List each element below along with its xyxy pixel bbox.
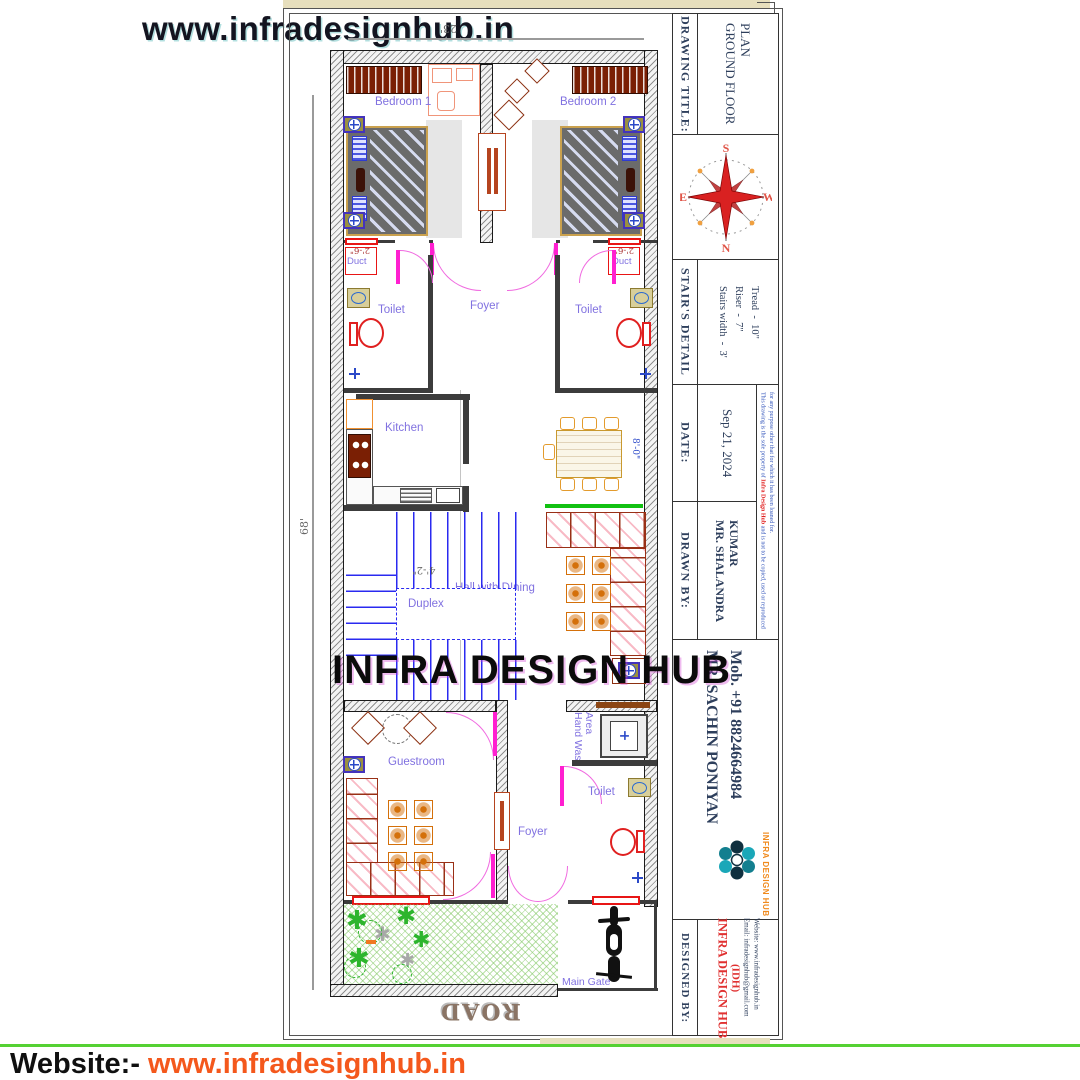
wardrobe-bedroom2 (572, 66, 648, 94)
window-bedroom2-lower (623, 212, 645, 229)
dim-line-left (312, 95, 314, 990)
stair-row-tread: Tread - 10" (746, 286, 762, 358)
road-label: ROAD (400, 998, 560, 1024)
tb-drawing-title-label: DRAWING TITLE: (673, 14, 698, 134)
guest-table-3 (388, 826, 407, 845)
handwash-shelf (596, 702, 650, 708)
tb-drawing-title: DRAWING TITLE: GROUND FLOOR PLAN (673, 14, 778, 134)
basin-toiletR (630, 288, 653, 308)
tb-logo-text: INFRA DESIGN HUB (761, 832, 770, 917)
label-foyer-upper: Foyer (470, 300, 499, 312)
label-duct-left: Duct (347, 256, 367, 267)
stairs-landing (396, 588, 516, 640)
basin-toiletL (347, 288, 370, 308)
window-guestroom (343, 756, 365, 773)
label-foyer-lower: Foyer (518, 826, 547, 838)
tb-drawnby-label: DRAWN BY: (673, 502, 698, 639)
window-bedroom2-upper (623, 116, 645, 133)
tb-drawnby-line2: KUMAR (727, 520, 741, 622)
dining-chair-b3 (604, 478, 619, 491)
compass-icon: S N E W (680, 141, 772, 253)
kitchen-sink (436, 488, 460, 503)
guest-table-2 (414, 800, 433, 819)
hall-sofa-right (610, 548, 646, 656)
hall-table-1 (566, 556, 585, 575)
sheet-tan-strip (283, 0, 770, 8)
guest-sofa-left (346, 778, 378, 868)
plant-accent (366, 940, 376, 944)
tap-toiletB (632, 872, 643, 883)
wall-kitchen-top (356, 394, 470, 400)
label-guestroom: Guestroom (388, 756, 445, 768)
plant-star-3: ✱ (412, 930, 430, 952)
label-toilet-lower: Toilet (588, 786, 615, 798)
threshold-duct-left (345, 238, 378, 245)
wall-toiletR-bottom (555, 388, 657, 393)
dining-chair-t1 (560, 417, 575, 430)
tap-toiletL (349, 368, 360, 379)
threshold-duct-right (608, 238, 641, 245)
svg-text:S: S (722, 141, 729, 155)
tb-compass-cell: S N E W (673, 134, 778, 259)
wc-tank-toiletB (636, 830, 645, 853)
threshold-right (592, 896, 640, 905)
label-bedroom2: Bedroom 2 (560, 96, 616, 108)
window-bedroom1-upper (343, 116, 365, 133)
tb-date-value: Sep 21, 2024 (719, 409, 735, 477)
plant-shrub-3 (392, 964, 412, 984)
dim-dining: 8'-0" (630, 438, 640, 459)
guest-table-1 (388, 800, 407, 819)
dining-chair-t2 (582, 417, 597, 430)
hall-table-6 (592, 612, 611, 631)
svg-text:E: E (680, 190, 687, 204)
guest-door-elevation (494, 792, 510, 850)
wc-bowl-toiletR (616, 318, 642, 348)
svg-text:W: W (763, 190, 772, 204)
watermark: INFRA DESIGN HUB (332, 648, 660, 693)
svg-text:N: N (721, 241, 730, 253)
hall-table-2 (592, 556, 611, 575)
dim-stair-width: 4'-2" (412, 564, 435, 575)
guest-table-4 (414, 826, 433, 845)
dim-plot-depth: 68' (298, 518, 311, 535)
tap-toiletR (640, 368, 651, 379)
wc-bowl-toiletL (358, 318, 384, 348)
label-kitchen: Kitchen (385, 422, 423, 434)
window-bedroom1-lower (343, 212, 365, 229)
idh-logo-icon (715, 838, 759, 882)
label-main-gate: Main Gate (562, 976, 610, 988)
poster-canvas: www.infradesignhub.in 23' 68' Bedroom 1 (0, 0, 1080, 1080)
wc-tank-toiletR (642, 322, 651, 346)
dining-chair-t3 (604, 417, 619, 430)
label-toilet-left: Toilet (378, 304, 405, 316)
bedroom-door (478, 133, 506, 211)
plant-star-2: ✱ (396, 904, 416, 928)
stair-row-riser: Riser - 7" (730, 286, 746, 358)
wall-toiletL-bottom (344, 388, 433, 393)
tb-designedby-email: Email: infradesignhub@gmail.com (742, 918, 752, 1038)
green-divider (545, 504, 643, 508)
handwash-unit (600, 714, 648, 758)
label-toilet-right: Toilet (575, 304, 602, 316)
tb-designedby-label: DESIGNED BY: (673, 920, 698, 1036)
kitchen-vent (400, 488, 432, 503)
tb-designedby-website: Website: www.infradesignhub.in (752, 918, 762, 1038)
title-block: DRAWING TITLE: GROUND FLOOR PLAN (672, 13, 779, 1036)
wardrobe-bedroom1 (346, 66, 422, 94)
label-bedroom1: Bedroom 1 (375, 96, 431, 108)
nightstand-bedroom1 (426, 120, 462, 238)
wall-top (330, 50, 658, 64)
tb-designedby-company: INFRA DESIGN HUB (715, 918, 730, 1038)
wall-left (330, 50, 344, 997)
hall-table-3 (566, 584, 585, 603)
footer-website-label: Website:- (10, 1048, 140, 1080)
plant-shrub-2 (344, 956, 366, 978)
door-leaf-guest-upper (493, 712, 497, 756)
basin-toiletB (628, 778, 651, 797)
stove (348, 434, 371, 478)
hall-table-5 (566, 612, 585, 631)
tb-drawing-title-line2: PLAN (738, 23, 753, 124)
door-leaf-toiletR (612, 250, 616, 284)
door-leaf-guest-lower (491, 854, 495, 898)
wc-tank-toiletL (349, 322, 358, 346)
wall-bottom-right-line (558, 988, 658, 991)
wc-bowl-toiletB (610, 828, 636, 856)
footer-bar: Website:- www.infradesignhub.in ✆ ☎ +91 … (0, 1047, 1080, 1080)
dining-chair-left (543, 444, 555, 460)
dim-plot-width: 23' (440, 22, 457, 35)
desk-bedroom1 (428, 64, 480, 116)
tb-stairs-label: STAIR'S DETAIL (673, 260, 698, 384)
wall-bottom-left (330, 984, 558, 997)
stairs-upper-flight (396, 512, 530, 590)
tb-drawing-title-line1: GROUND FLOOR (723, 23, 738, 124)
wall-toiletB-top (572, 760, 657, 766)
tb-disclaimer: This drawing is the sole property of Inf… (756, 385, 778, 639)
guest-table-5 (388, 852, 407, 871)
tb-designedby-abbr: (IDH) (730, 918, 742, 1038)
wall-toiletR-left (555, 255, 560, 392)
hall-table-4 (592, 584, 611, 603)
label-duplex: Duplex (408, 598, 444, 610)
kitchen-cab (346, 399, 373, 429)
dining-chair-b1 (560, 478, 575, 491)
tb-drawnby-line1: MR. SHALANDRA (713, 520, 727, 622)
wall-kitchen-bottom (344, 505, 469, 511)
tb-designed-by: DESIGNED BY: INFRA DESIGN HUB (IDH) Emai… (673, 919, 778, 1036)
stair-row-width: Stairs width - 3' (714, 286, 730, 358)
dim-duct-right: 2'-6" (614, 245, 634, 255)
tb-date-label: DATE: (673, 385, 698, 501)
stairs-left-flight (346, 562, 396, 656)
guest-table-6 (414, 852, 433, 871)
tb-stairs-detail: STAIR'S DETAIL Stairs width - 3' Riser -… (673, 259, 778, 384)
wall-kitchen-right (463, 394, 469, 464)
wall-right-lower-line (654, 904, 657, 990)
dim-duct-left: 2'-6" (350, 245, 370, 255)
dim-line-top (348, 38, 644, 40)
dining-chair-b2 (582, 478, 597, 491)
footer-website-url: www.infradesignhub.in (148, 1048, 466, 1080)
hall-sofa-top (546, 512, 646, 548)
motorcycle-icon (594, 906, 634, 986)
dining-table (556, 430, 622, 478)
tb-date-drawnby: DATE: Sep 21, 2024 DRAWN BY: MR. SHALAND… (673, 384, 778, 639)
